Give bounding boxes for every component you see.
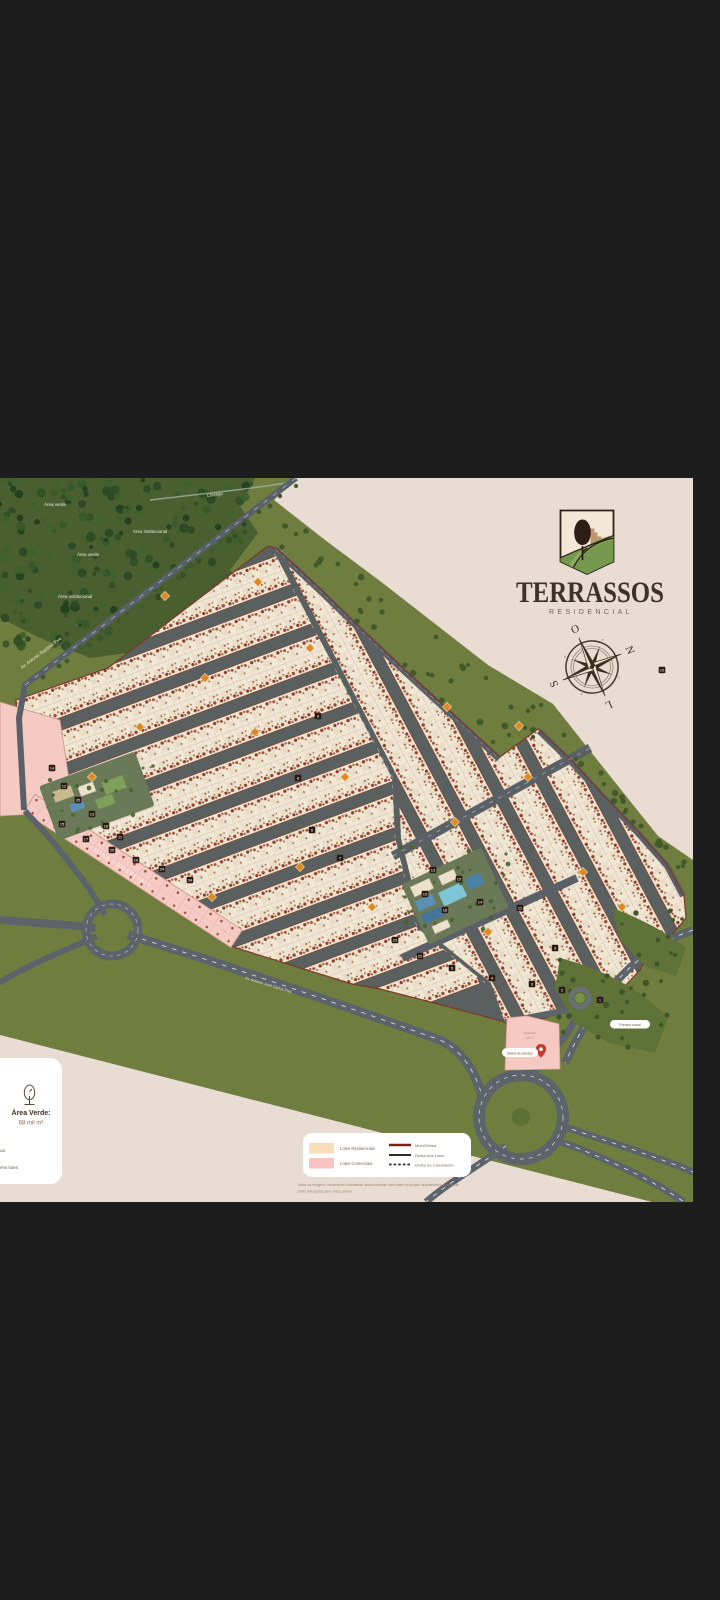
svg-text:17: 17	[84, 837, 89, 842]
svg-text:35: 35	[76, 798, 81, 803]
svg-text:16: 16	[443, 908, 448, 913]
svg-text:Lotes Comerciais: Lotes Comerciais	[340, 1161, 372, 1166]
svg-text:ens lotes: ens lotes	[0, 1165, 19, 1170]
svg-text:16: 16	[134, 858, 139, 863]
svg-text:15: 15	[457, 877, 462, 882]
svg-text:22: 22	[418, 954, 423, 959]
svg-text:Stand de vendas: Stand de vendas	[507, 1051, 533, 1055]
svg-text:34: 34	[188, 878, 193, 883]
svg-text:Todas as imagens meramente ilu: Todas as imagens meramente ilustrativas …	[297, 1183, 459, 1187]
svg-text:Área institucional: Área institucional	[58, 593, 92, 599]
svg-text:Lotes Residenciais: Lotes Residenciais	[340, 1146, 375, 1151]
svg-text:Divisa dos Lotes: Divisa dos Lotes	[415, 1153, 444, 1158]
svg-text:Área Verde:: Área Verde:	[12, 1108, 51, 1117]
svg-text:ua: ua	[0, 1148, 6, 1153]
svg-text:15: 15	[60, 822, 65, 827]
svg-text:Área verde: Área verde	[44, 501, 67, 507]
svg-text:12: 12	[62, 784, 67, 789]
svg-text:Lote 1: Lote 1	[526, 1036, 535, 1040]
svg-text:14: 14	[478, 900, 483, 905]
svg-text:18: 18	[104, 824, 109, 829]
svg-text:Área verde: Área verde	[77, 551, 100, 557]
svg-text:25: 25	[110, 848, 115, 853]
svg-text:13: 13	[431, 868, 436, 873]
svg-text:TERRASSOS: TERRASSOS	[516, 576, 664, 609]
svg-text:23: 23	[393, 938, 398, 943]
svg-text:13: 13	[90, 812, 95, 817]
svg-text:10: 10	[660, 668, 665, 673]
svg-text:Muro/Divisa: Muro/Divisa	[415, 1143, 437, 1148]
svg-text:RESIDENCIAL: RESIDENCIAL	[549, 609, 633, 616]
svg-text:Portaria social: Portaria social	[619, 1023, 641, 1027]
svg-text:68 mil m²: 68 mil m²	[19, 1121, 44, 1127]
svg-text:Área institucional: Área institucional	[133, 528, 167, 534]
svg-text:Divisa do Loteamento: Divisa do Loteamento	[415, 1163, 454, 1168]
svg-text:14: 14	[50, 766, 55, 771]
svg-text:24: 24	[160, 867, 165, 872]
svg-text:10: 10	[423, 892, 428, 897]
svg-text:Quadra C: Quadra C	[523, 1031, 537, 1035]
svg-text:sofrer alterações sem aviso pr: sofrer alterações sem aviso prévio.	[297, 1190, 353, 1194]
